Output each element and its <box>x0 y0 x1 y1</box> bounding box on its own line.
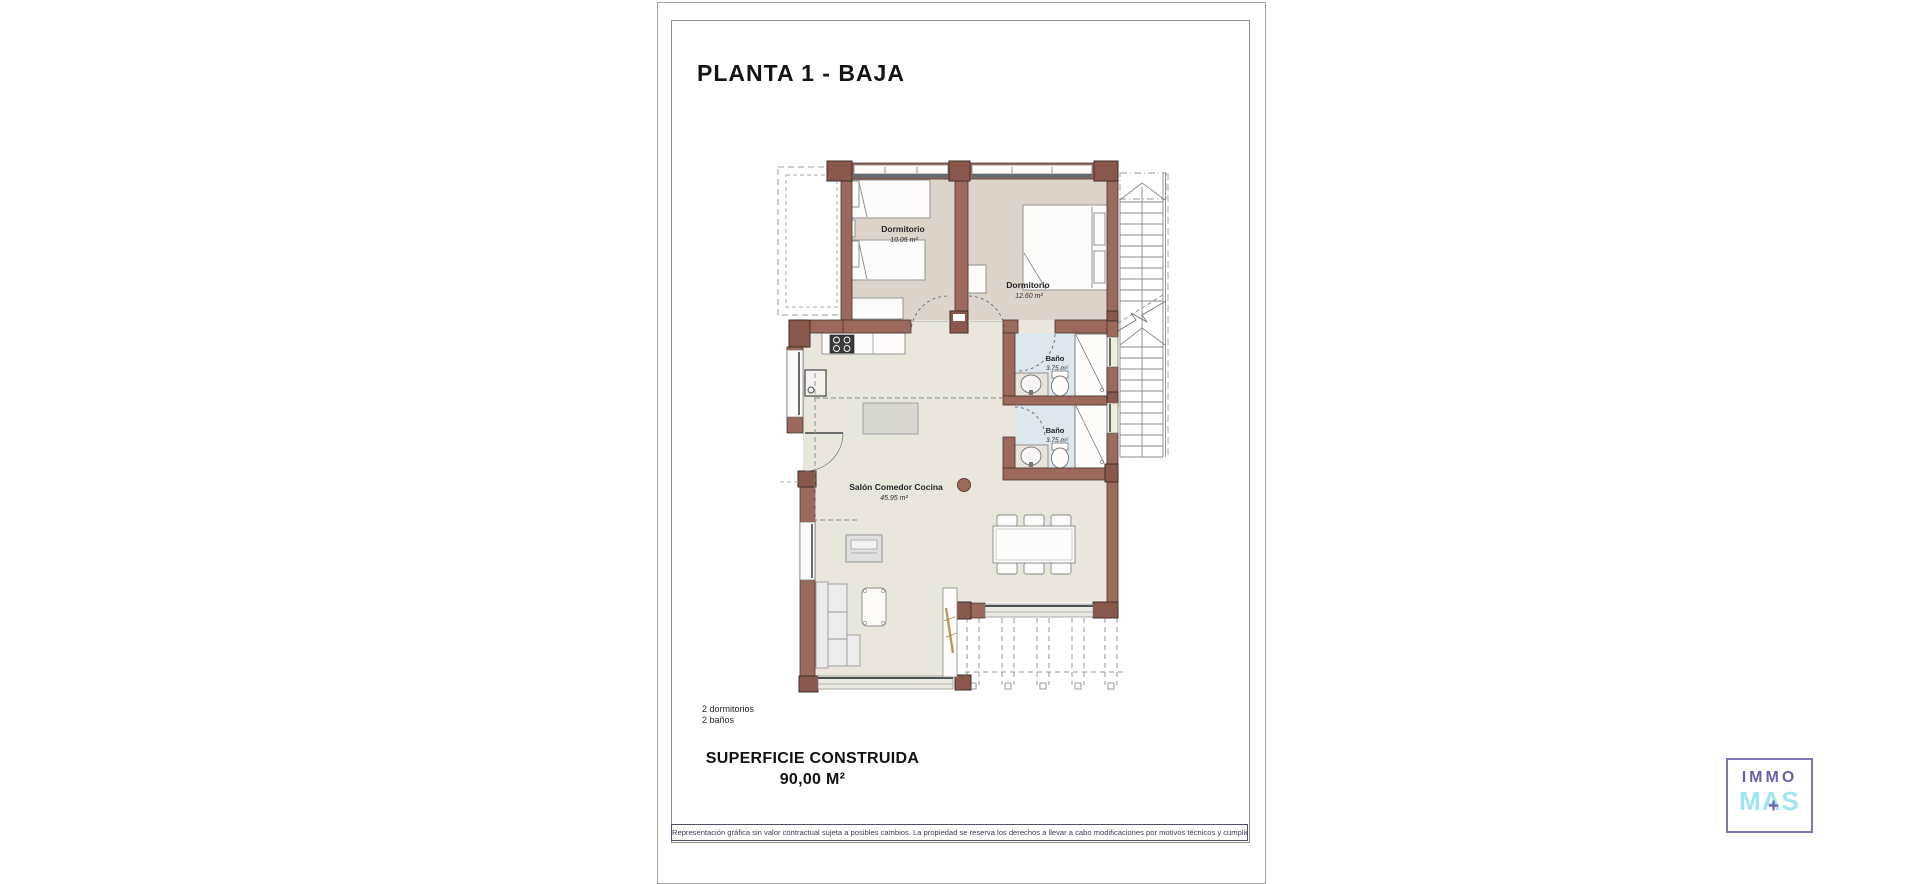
kitchen-island <box>863 403 918 434</box>
room-label-dormitorio2: Dormitorio <box>1006 280 1049 290</box>
post-notch <box>953 314 965 321</box>
toilet-icon <box>1052 448 1069 468</box>
summary-bathrooms: 2 baños <box>702 715 754 726</box>
logo-line2: MAS+ <box>1728 787 1811 815</box>
water-heater-icon <box>805 370 826 396</box>
floor-plan: Dormitorio 10.05 m² Dormitorio 12.60 m² … <box>770 125 1190 700</box>
column <box>958 479 971 492</box>
room-label-bano2: Baño <box>1046 426 1065 435</box>
floorplan-page: { "page": { "title": "PLANTA 1 - BAJA" }… <box>0 0 1920 860</box>
built-surface: SUPERFICIE CONSTRUIDA 90,00 M² <box>690 750 935 789</box>
room-summary: 2 dormitorios 2 baños <box>702 704 754 726</box>
floor-plan-drawing: Dormitorio 10.05 m² Dormitorio 12.60 m² … <box>770 125 1190 700</box>
room-label-bano1: Baño <box>1046 354 1065 363</box>
built-surface-label: SUPERFICIE CONSTRUIDA <box>690 750 935 768</box>
room-area-bano1: 3.75 m² <box>1046 365 1069 372</box>
immomas-logo: IMMO MAS+ <box>1726 758 1813 833</box>
terrace-outline-left <box>778 167 844 315</box>
room-area-dormitorio1: 10.05 m² <box>890 237 918 244</box>
page-title: PLANTA 1 - BAJA <box>697 60 905 87</box>
room-label-salon: Salón Comedor Cocina <box>849 482 943 492</box>
logo-line1: IMMO <box>1728 770 1811 786</box>
room-area-salon: 45.95 m² <box>880 495 908 502</box>
room-label-dormitorio1: Dormitorio <box>881 224 924 234</box>
pergola-terrace <box>965 618 1126 689</box>
toilet-icon <box>1052 376 1069 396</box>
logo-s: S <box>1782 786 1800 816</box>
built-surface-value: 90,00 M² <box>690 771 935 789</box>
summary-bedrooms: 2 dormitorios <box>702 704 754 715</box>
staircase <box>1118 173 1168 457</box>
logo-plus-icon: + <box>1768 797 1780 816</box>
dining-set <box>993 515 1075 574</box>
room-area-bano2: 3.75 m² <box>1046 437 1069 444</box>
coffee-table <box>862 588 886 626</box>
legal-disclaimer: Representación gráfica sin valor contrac… <box>671 824 1248 841</box>
room-area-dormitorio2: 12.60 m² <box>1015 293 1043 300</box>
